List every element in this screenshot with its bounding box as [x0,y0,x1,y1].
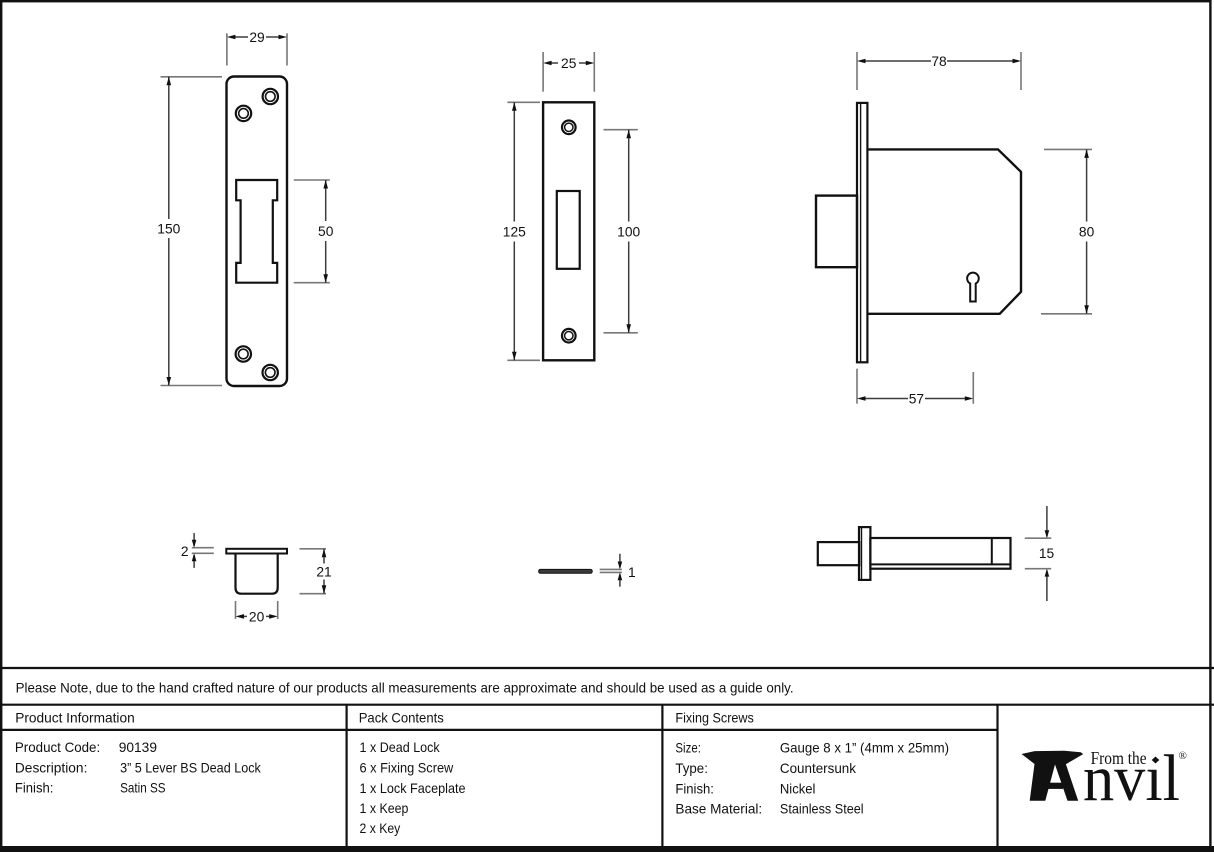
svg-text:78: 78 [931,54,947,69]
svg-text:125: 125 [503,225,526,240]
svg-text:Please Note, due to the hand c: Please Note, due to the hand crafted nat… [16,679,794,695]
svg-text:Stainless Steel: Stainless Steel [780,801,864,817]
svg-text:From the: From the [1091,748,1147,768]
svg-text:29: 29 [249,30,265,45]
svg-text:Description:: Description: [15,760,88,776]
svg-text:Gauge 8 x 1” (4mm x 25mm): Gauge 8 x 1” (4mm x 25mm) [780,740,949,756]
svg-text:®: ® [1179,750,1187,762]
svg-text:50: 50 [318,224,334,239]
svg-text:Size:: Size: [675,740,701,756]
svg-text:Pack Contents: Pack Contents [359,709,444,725]
svg-text:Finish:: Finish: [675,780,714,796]
svg-text:15: 15 [1039,546,1055,561]
svg-text:6 x Fixing Screw: 6 x Fixing Screw [360,760,455,776]
svg-text:21: 21 [316,565,331,580]
svg-text:Type:: Type: [675,760,708,776]
svg-text:25: 25 [561,56,577,71]
svg-text:Base Material:: Base Material: [675,801,762,817]
svg-text:1 x Dead Lock: 1 x Dead Lock [360,739,441,755]
svg-text:90139: 90139 [119,739,158,755]
svg-text:Countersunk: Countersunk [780,760,857,776]
svg-text:Satin SS: Satin SS [120,779,166,795]
svg-text:150: 150 [157,222,180,237]
svg-text:Product Information: Product Information [15,709,135,725]
svg-text:3” 5 Lever BS Dead Lock: 3” 5 Lever BS Dead Lock [120,760,262,776]
svg-text:57: 57 [909,392,924,407]
svg-text:Fixing Screws: Fixing Screws [675,709,753,725]
svg-text:100: 100 [617,225,640,240]
svg-text:1: 1 [628,565,636,580]
svg-text:1 x Keep: 1 x Keep [360,800,409,816]
svg-text:20: 20 [249,609,265,624]
svg-text:2 x Key: 2 x Key [360,820,401,836]
svg-text:Finish:: Finish: [15,780,54,796]
svg-text:80: 80 [1079,225,1095,240]
svg-text:2: 2 [181,544,189,559]
svg-text:1 x Lock Faceplate: 1 x Lock Faceplate [360,780,466,796]
svg-text:Nickel: Nickel [780,780,816,796]
svg-text:Product Code:: Product Code: [15,739,100,755]
